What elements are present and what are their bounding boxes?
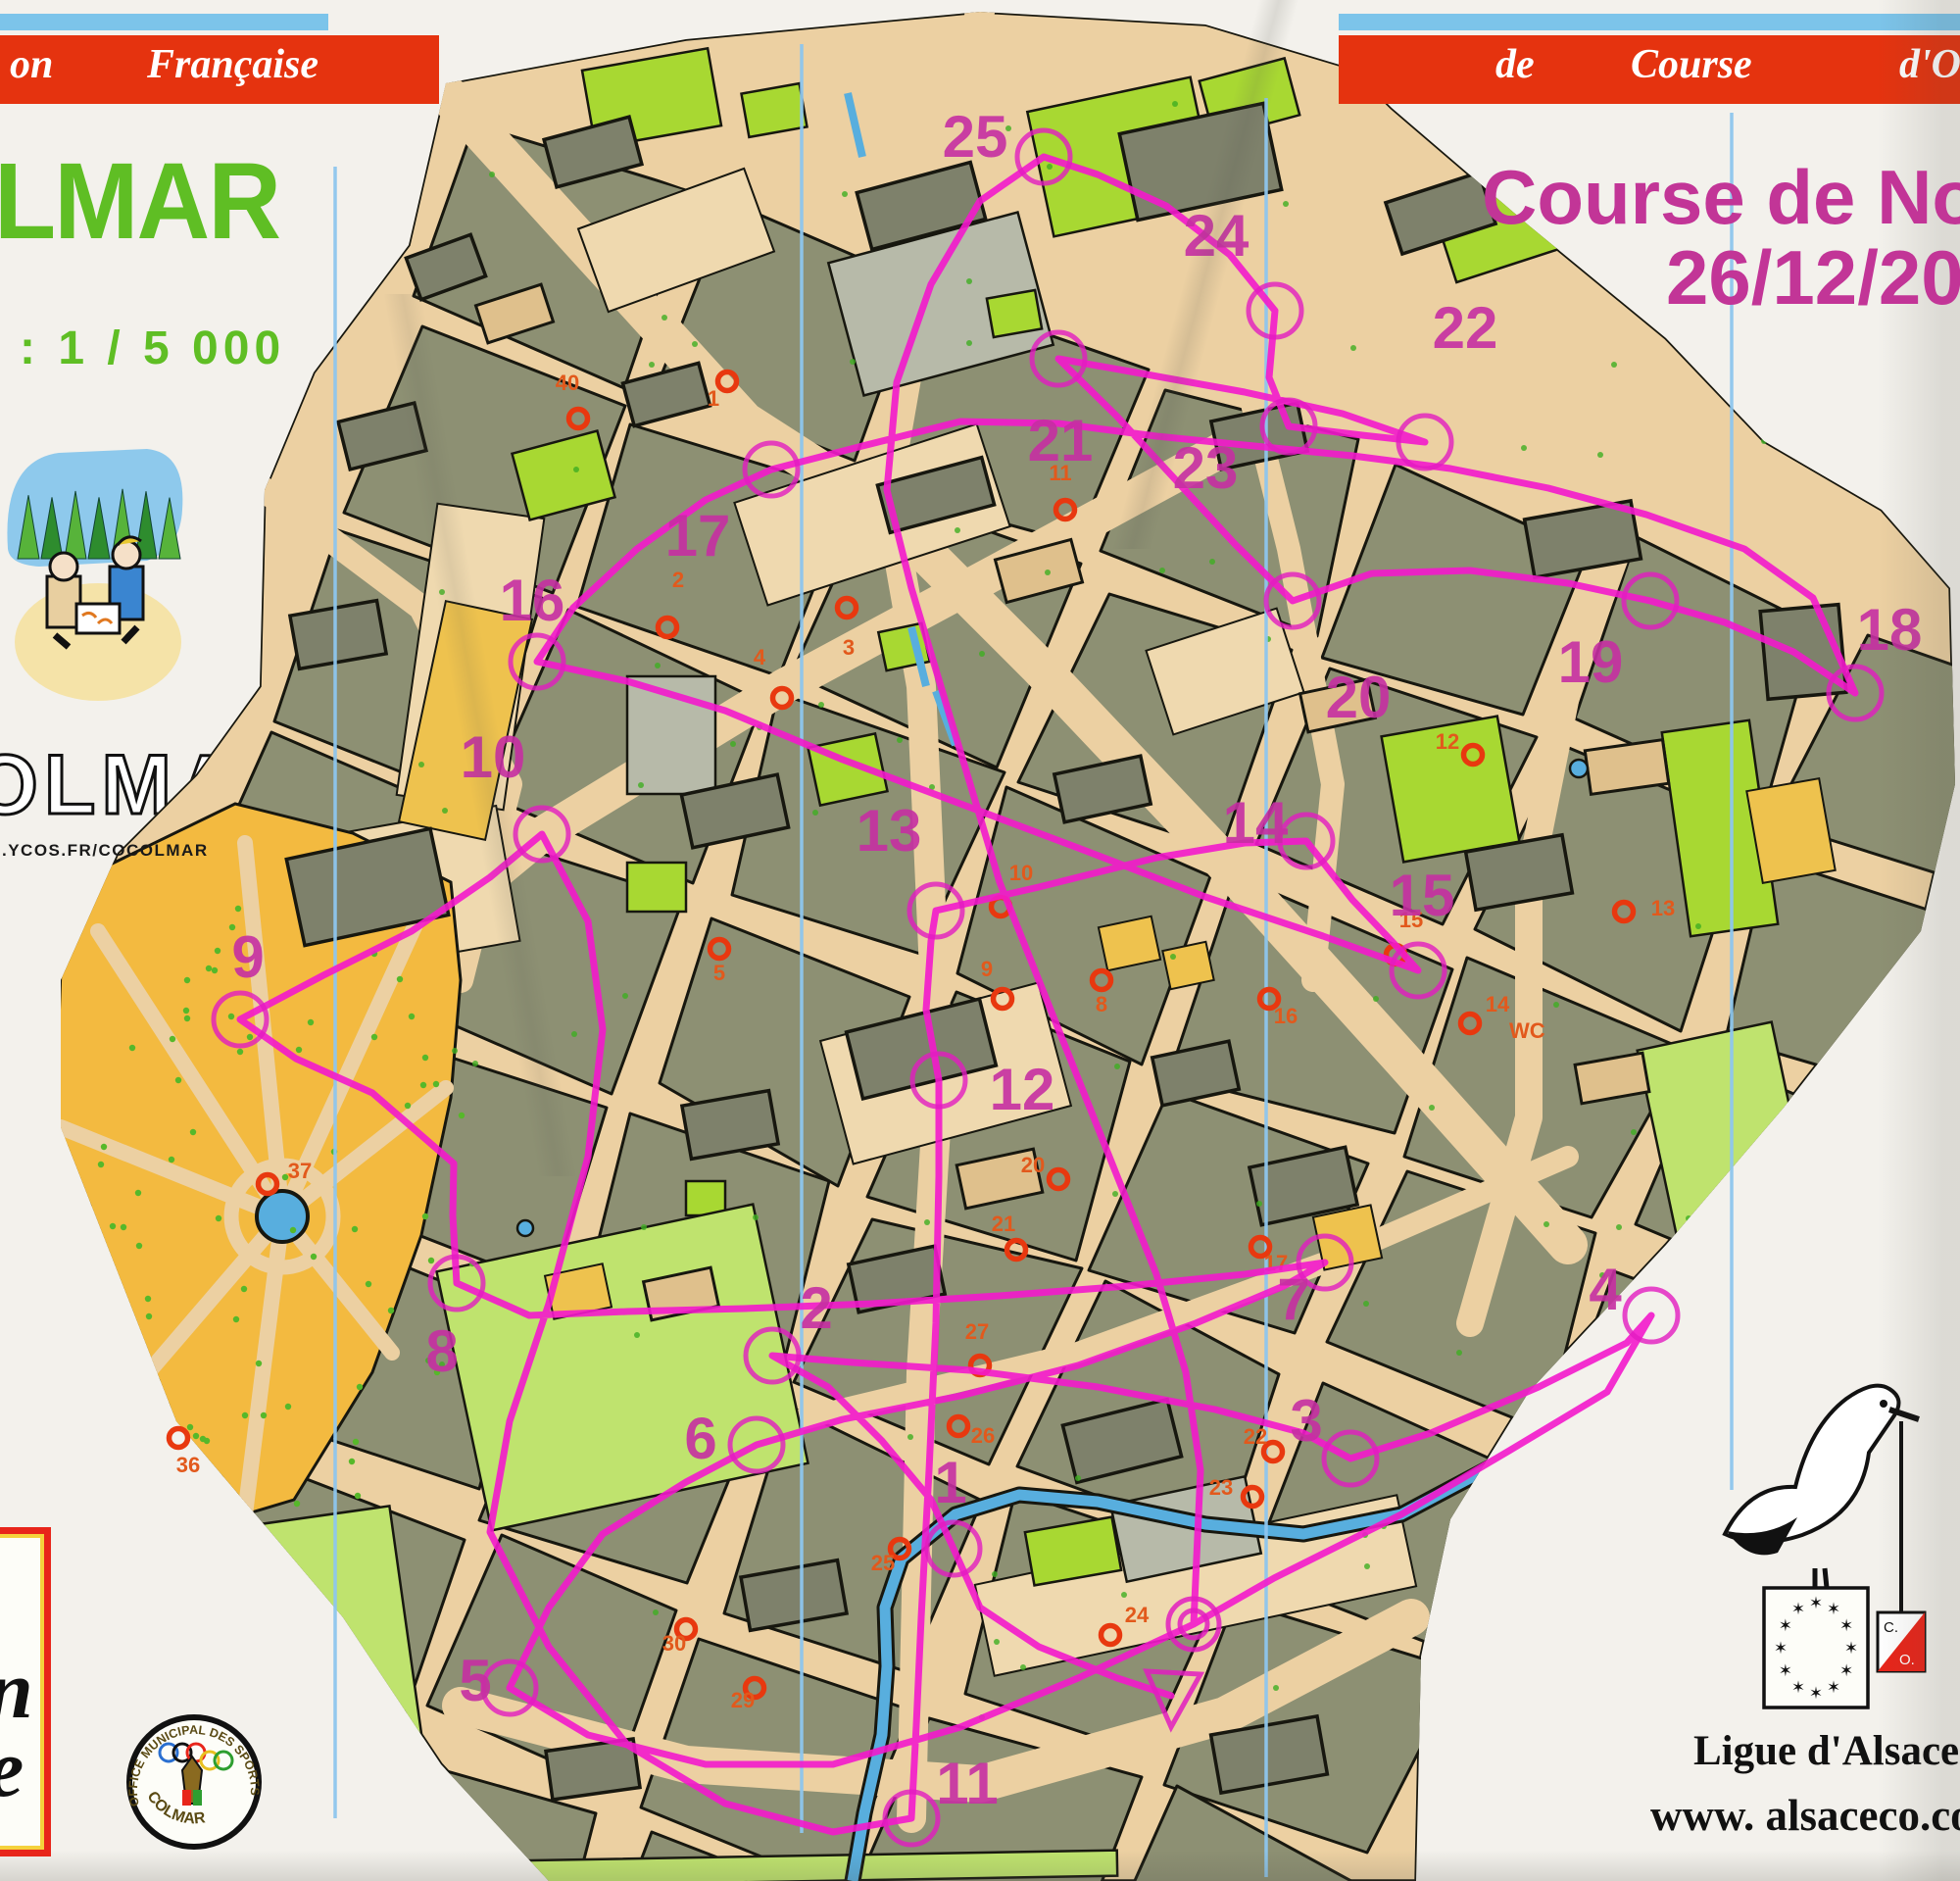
map-scale-text: : 1 / 5 000 [20,322,285,375]
banner-left-fragment: on [10,41,53,88]
street-tree-dot [1611,362,1617,368]
park-tree-dot [290,1227,296,1233]
park-tree-dot [241,1286,247,1292]
street-tree-dot [1521,445,1527,451]
star-glyph: ✶ [1844,1639,1858,1658]
cartoon-runner-blue-head [113,541,140,569]
star-glyph: ✶ [1791,1678,1805,1697]
street-tree-dot [1553,1002,1559,1008]
street-tree-dot [1256,1201,1262,1207]
star-glyph: ✶ [1779,1661,1792,1680]
park-tree-dot [170,1036,175,1042]
street-tree-dot [753,1214,759,1220]
park-tree-dot [121,1224,126,1230]
control-number-22: 22 [1433,295,1498,361]
star-glyph: ✶ [1827,1600,1840,1618]
park-tree-dot [193,1433,199,1439]
street-tree-dot [653,1609,659,1615]
partner-letter-n: n [0,1652,44,1730]
control-number-4: 4 [1589,1257,1622,1322]
park-tree-dot [308,1019,314,1025]
red-control-number: 20 [1021,1153,1045,1177]
pond [517,1220,533,1236]
park-tree-dot [285,1404,291,1410]
street-tree-dot [655,663,661,668]
red-control-number: 2 [672,568,684,592]
city-block [1419,1683,1675,1881]
park-tree-dot [409,1014,415,1019]
street-tree-dot [1597,452,1603,458]
street-tree-dot [1075,1475,1081,1481]
control-number-24: 24 [1184,203,1249,269]
street-tree-dot [1726,1575,1732,1581]
street-tree-dot [1456,1350,1462,1356]
park-tree-dot [242,1412,248,1418]
park-tree-dot [175,1077,181,1083]
control-number-13: 13 [857,798,922,864]
park-tree-dot [352,1226,358,1232]
park-tree-dot [184,1015,190,1021]
park-tree-dot [107,1270,113,1276]
street-tree-dot [994,1639,1000,1645]
red-control-number: 10 [1009,861,1033,885]
red-control-number: 5 [713,961,725,985]
street-tree-dot [1045,569,1051,575]
street-tree-dot [1429,1105,1435,1111]
park-tree-dot [433,1081,439,1087]
red-control-number: 8 [1096,992,1107,1016]
park-tree-dot [422,1055,428,1061]
league-name: Ligue d'Alsace [1693,1727,1959,1775]
control-number-18: 18 [1857,597,1923,663]
street-tree-dot [1363,1301,1369,1307]
event-date: 26/12/20 [1666,233,1960,322]
control-number-19: 19 [1558,629,1624,695]
control-number-6: 6 [684,1406,716,1471]
street-tree-dot [924,1219,930,1225]
street-tree-dot [1047,164,1053,170]
cartoon-map-held [76,604,120,633]
street-tree-dot [1686,1324,1691,1330]
canopy-building [1585,740,1668,795]
park-tree-dot [311,1254,317,1260]
star-glyph: ✶ [1779,1616,1792,1635]
street-tree-dot [1159,568,1165,573]
control-number-11: 11 [936,1751,998,1816]
banner-left-word: Française [147,41,318,88]
street-tree-dot [1373,996,1379,1002]
flag-letter-c: C. [1884,1619,1898,1636]
city-block [52,1856,301,1881]
street-tree-dot [730,741,736,747]
banner-right-w3: d'O [1899,41,1960,88]
street-tree-dot [573,467,579,472]
red-control-number: 26 [971,1423,995,1448]
red-control-number: 3 [843,635,855,660]
street-tree-dot [1686,1215,1691,1221]
city-title-partial: LMAR [0,139,279,264]
street-tree-dot [1209,559,1215,565]
street-tree-dot [1364,1563,1370,1569]
street-tree-dot [1020,1664,1026,1670]
vegetation-patch [742,83,808,137]
park-tree-dot [256,1361,262,1366]
star-glyph: ✶ [1809,1594,1823,1612]
league-url: www. alsaceco.co [1650,1790,1960,1841]
street-tree-dot [634,1332,640,1338]
red-control-number: 21 [992,1212,1015,1236]
street-tree-dot [907,1434,913,1440]
street-tree-dot [472,1061,478,1066]
street-tree-dot [966,278,972,284]
red-control-number: 27 [965,1319,989,1344]
park-tree-dot [98,1162,104,1167]
control-number-7: 7 [1277,1266,1309,1332]
street-tree-dot [1616,1224,1622,1230]
park-tree-dot [210,1514,216,1520]
header-stripe-left [0,14,328,30]
stork-eye [1880,1400,1887,1408]
red-control-number: 25 [871,1551,895,1575]
banner-right-w1: de [1495,41,1535,88]
control-number-21: 21 [1028,408,1094,473]
control-number-23: 23 [1173,435,1239,501]
control-number-5: 5 [459,1648,491,1713]
park-tree-dot [135,1190,141,1196]
park-tree-dot [349,1459,355,1464]
street-tree-dot [1283,201,1289,207]
red-control-number: 30 [662,1631,686,1656]
street-tree-dot [641,1224,647,1230]
park-tree-dot [388,1308,394,1313]
red-control-number: 9 [981,957,993,981]
street-tree-dot [1741,410,1747,416]
control-number-25: 25 [943,104,1008,170]
street-tree-dot [1761,438,1767,444]
control-number-9: 9 [231,924,264,990]
control-number-2: 2 [800,1275,832,1341]
red-control-number: 36 [176,1453,200,1477]
cartoon-runner-tan-head [50,553,77,580]
park-tree-dot [146,1313,152,1319]
red-control-number: 1 [708,386,719,411]
street-tree-dot [1273,1685,1279,1691]
park-tree-dot [110,1223,116,1229]
street-tree-dot [649,362,655,368]
control-number-8: 8 [425,1318,458,1384]
park-tree-dot [169,1157,174,1163]
control-number-20: 20 [1326,665,1392,730]
control-number-1: 1 [934,1450,966,1515]
flag-letter-o: O. [1899,1652,1915,1668]
park-tree-dot [101,1144,107,1150]
park-tree-dot [405,1103,411,1109]
open-yellow-area [1746,778,1835,883]
park-tree-dot [233,1316,239,1322]
park-tree-dot [203,1470,209,1476]
park-tree-dot [242,1510,248,1515]
star-glyph: ✶ [1827,1678,1840,1697]
park-tree-dot [420,1082,426,1088]
park-tree-dot [184,977,190,983]
event-title: Course de No [1482,153,1960,242]
control-number-10: 10 [461,724,526,790]
park-tree-dot [355,1493,361,1499]
control-number-12: 12 [990,1057,1055,1122]
building [546,1739,640,1800]
red-control-number: 24 [1125,1603,1150,1627]
park-tree-dot [91,1301,97,1307]
red-control-number: 16 [1274,1004,1298,1028]
street-tree-dot [1543,1221,1549,1227]
street-tree-dot [842,191,848,197]
banner-right-w2: Course [1631,41,1752,88]
red-control-number: 4 [754,645,766,669]
street-tree-dot [489,172,495,177]
park-tree-dot [145,1296,151,1302]
park-tree-dot [129,1045,135,1051]
park-tree-dot [296,1047,302,1053]
street-tree-dot [1695,923,1701,929]
red-control-number: 14 [1486,992,1510,1016]
oms-shield-red [182,1790,191,1806]
park-tree-dot [366,1281,371,1287]
park-tree-dot [212,967,218,973]
federation-banner-left: on Française [0,35,439,104]
park-tree-dot [166,1462,171,1468]
street-tree-dot [955,527,960,533]
control-number-3: 3 [1290,1388,1322,1454]
red-control-number: 40 [556,371,579,395]
control-number-15: 15 [1390,863,1455,928]
control-number-17: 17 [665,503,731,569]
park-tree-dot [187,1424,193,1430]
park-tree-dot [237,1049,243,1055]
park-tree-dot [228,1014,234,1019]
park-tree-dot [294,1501,300,1507]
street-tree-dot [897,737,903,743]
street-tree-dot [1350,345,1356,351]
park-tree-dot [235,906,241,912]
partner-letter-e: e [0,1730,44,1808]
street-tree-dot [992,1571,998,1577]
star-glyph: ✶ [1839,1661,1853,1680]
street-tree-dot [1170,954,1176,960]
park-fountain [257,1191,308,1242]
control-number-16: 16 [500,568,565,633]
red-control-ring [170,1429,188,1448]
street-tree-dot [692,341,698,347]
red-control-number: 13 [1651,896,1675,920]
park-tree-dot [428,1258,434,1263]
club-url: .YCOS.FR/COCOLMAR [2,841,209,861]
park-tree-dot [117,1383,122,1389]
star-glyph: ✶ [1839,1616,1853,1635]
street-tree-dot [850,359,856,365]
red-control-number: 37 [288,1159,312,1183]
street-tree-dot [1710,1470,1716,1476]
park-tree-dot [353,1439,359,1445]
street-tree-dot [1121,1592,1127,1598]
red-control-number: 12 [1436,729,1459,754]
street-tree-dot [638,782,644,788]
vegetation-patch [987,290,1042,337]
street-tree-dot [812,810,818,816]
street-tree-dot [1583,1693,1589,1699]
street-tree-dot [979,651,985,657]
street-tree-dot [1112,1191,1118,1197]
park-tree-dot [183,1008,189,1014]
partner-logo-sliver: n e [0,1527,51,1856]
stork-leg [1825,1568,1827,1588]
street-tree-dot [818,702,824,708]
street-tree-dot [452,1048,458,1054]
wc-label: WC [1509,1018,1545,1043]
street-tree-dot [1114,1064,1120,1069]
street-tree-dot [1631,1129,1637,1135]
oms-colmar-logo: OFFICE MUNICIPAL DES SPORTSCOLMAR [126,1717,262,1847]
street-tree-dot [439,589,445,595]
star-glyph: ✶ [1774,1639,1788,1658]
cartoon-ground [15,583,181,701]
ligue-alsace-logo: ✶✶✶✶✶✶✶✶✶✶✶✶C.O. [1725,1386,1925,1708]
park-tree-dot [216,1215,221,1221]
orienteers-cartoon [7,449,182,701]
stork-body [1725,1386,1898,1543]
street-tree-dot [418,762,424,767]
vegetation-patch [627,863,686,912]
red-control-number: 29 [731,1688,755,1712]
red-control-number: 22 [1244,1424,1267,1449]
street-tree-dot [966,340,972,346]
park-tree-dot [200,1436,206,1442]
federation-banner-right: de Course d'O [1339,35,1960,104]
street-tree-dot [1172,101,1178,107]
park-tree-dot [136,1243,142,1249]
pond [1570,760,1588,777]
star-glyph: ✶ [1809,1684,1823,1703]
park-tree-dot [206,965,212,971]
city-block [1480,1463,1757,1731]
red-control-number: 23 [1209,1475,1233,1500]
star-glyph: ✶ [1791,1600,1805,1618]
street-tree-dot [622,993,628,999]
open-yellow-area [1162,942,1213,989]
scanned-map-sheet: OLMAR40123458910111213141516172021222324… [0,0,1960,1881]
park-tree-dot [422,1213,428,1219]
park-tree-dot [459,1113,465,1118]
park-tree-dot [397,976,403,982]
park-tree-dot [357,1384,363,1390]
control-number-14: 14 [1223,790,1289,856]
oms-shield-green [193,1790,202,1806]
park-tree-dot [247,1034,253,1040]
header-stripe-right [1339,14,1960,30]
street-tree-dot [661,315,667,321]
park-tree-dot [371,1034,377,1040]
street-tree-dot [571,1031,577,1037]
street-tree-dot [442,808,448,814]
park-tree-dot [261,1412,267,1418]
park-tree-dot [190,1129,196,1135]
park-tree-dot [215,948,220,954]
